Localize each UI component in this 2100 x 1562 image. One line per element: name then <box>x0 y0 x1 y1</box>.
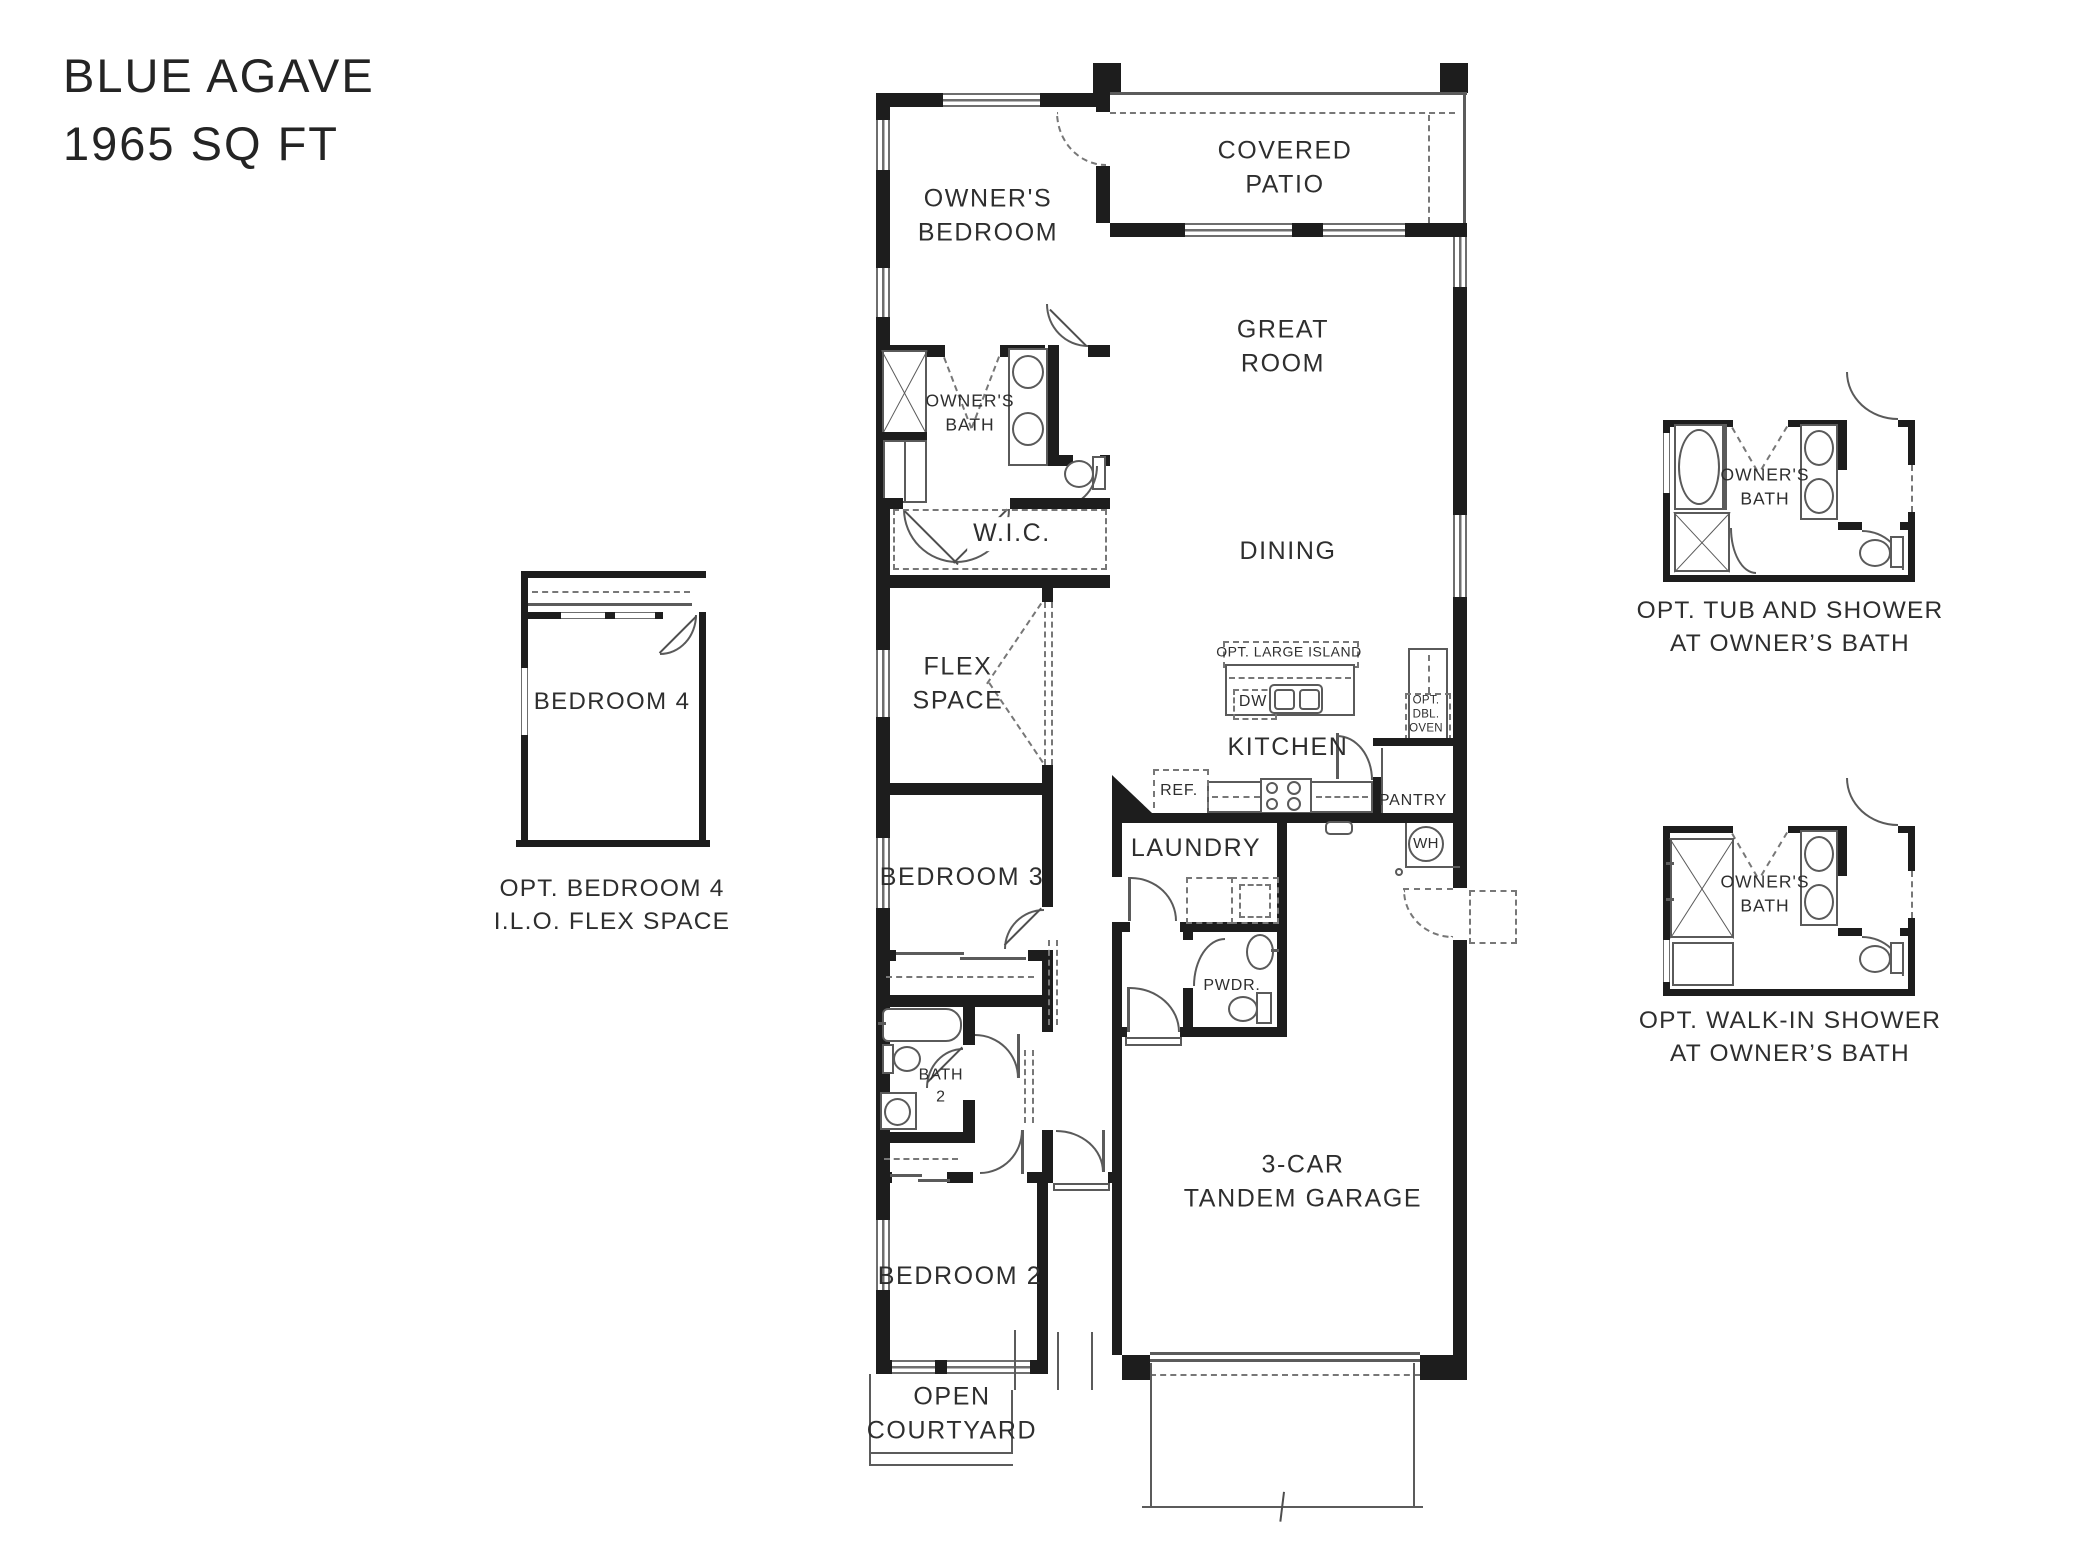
wall-segment <box>1112 1027 1127 1037</box>
sink-basin <box>1299 689 1320 710</box>
wall-segment <box>1292 223 1323 237</box>
wall-segment <box>1112 922 1130 932</box>
window <box>892 1360 935 1374</box>
toilet-bowl <box>1228 996 1258 1022</box>
wall-segment <box>1420 1355 1467 1380</box>
floor-plan-canvas: BLUE AGAVE1965 SQ FT <box>0 0 2100 1562</box>
door-leaf <box>1017 1034 1020 1078</box>
opening-dashed <box>1911 465 1913 512</box>
wall-segment <box>1112 1037 1122 1355</box>
wall-segment <box>699 619 706 847</box>
burner <box>1266 782 1278 794</box>
wall-segment <box>1112 823 1122 877</box>
sink-basin <box>1804 430 1834 466</box>
wall-segment <box>963 1007 975 1045</box>
edge-line <box>528 603 692 606</box>
wall-segment <box>1042 1130 1053 1172</box>
closet-rod-dashed <box>886 976 1034 978</box>
wall-segment <box>1110 223 1185 237</box>
door-swing-arc <box>1056 112 1106 166</box>
door-swing-arc <box>1846 372 1898 420</box>
wall-segment <box>876 498 903 509</box>
ceiling-break-dashed <box>1056 940 1058 1025</box>
door-swing-arc <box>1730 528 1756 574</box>
wh-nook-line <box>1405 866 1460 868</box>
sink-basin <box>884 1098 911 1126</box>
plan-title: BLUE AGAVE1965 SQ FT <box>63 42 375 178</box>
closet-rod-dashed <box>884 1158 958 1160</box>
door-swing-arc <box>975 1034 1019 1078</box>
wall-segment <box>1096 166 1110 223</box>
label-covered-patio: COVERED PATIO <box>1218 134 1353 202</box>
wall-segment <box>876 1132 975 1143</box>
wall-segment <box>1663 826 1733 833</box>
tub-faucet <box>878 1022 886 1025</box>
toilet-tank <box>1890 536 1904 568</box>
bypass-door-line <box>918 1179 950 1182</box>
door-leaf <box>1102 1130 1105 1172</box>
door-swing-arc <box>1004 909 1044 949</box>
optional-door-dashed <box>1044 602 1046 765</box>
floor-drain <box>1395 868 1403 876</box>
wall-segment <box>1180 1027 1287 1037</box>
wall-segment <box>1030 1360 1048 1374</box>
wall-segment <box>1040 93 1110 107</box>
window <box>876 268 890 317</box>
bypass-door-line <box>890 1174 922 1177</box>
label-garage: 3-CAR TANDEM GARAGE <box>1184 1148 1422 1216</box>
wall-segment <box>1838 826 1847 876</box>
window <box>615 612 655 619</box>
wall-segment <box>1663 989 1915 996</box>
wall-segment <box>876 717 890 838</box>
window <box>1663 433 1670 493</box>
window <box>876 650 890 717</box>
cased-opening-dashed <box>1024 1050 1026 1123</box>
burner <box>1287 797 1301 811</box>
label-owners-bedroom: OWNER'S BEDROOM <box>918 182 1058 250</box>
patio-post <box>1093 63 1121 93</box>
wall-segment <box>876 1360 892 1374</box>
optional-door-dashed <box>1051 602 1053 765</box>
washer-box <box>1186 877 1233 924</box>
wall-segment <box>521 735 528 847</box>
window <box>1453 515 1467 597</box>
label-laundry: LAUNDRY <box>1131 832 1261 866</box>
ceiling-break-dashed <box>1048 940 1050 1025</box>
burner <box>1287 781 1301 795</box>
wall-segment <box>1112 775 1152 813</box>
label-opt-large-island: OPT. LARGE ISLAND <box>1216 643 1361 662</box>
wh-nook-line <box>1405 823 1407 868</box>
wall-segment <box>876 170 890 268</box>
wall-segment <box>1027 1172 1053 1183</box>
shower-fixture <box>1666 862 1674 865</box>
door-swing-arc <box>1131 877 1177 921</box>
label-pantry: PANTRY <box>1379 790 1447 812</box>
wall-segment <box>1088 345 1110 357</box>
wall-segment <box>1028 950 1048 961</box>
walkway-line <box>1091 1332 1093 1390</box>
burner <box>1266 798 1278 810</box>
linen-closet <box>1672 942 1734 986</box>
wall-segment <box>1908 826 1915 871</box>
label-inset-owners-bath: OWNER'S BATH <box>1720 463 1809 510</box>
door-leaf <box>1021 1130 1024 1174</box>
wall-segment <box>516 840 710 847</box>
wall-segment <box>1453 287 1467 515</box>
wall-segment <box>1042 588 1053 602</box>
wall-segment <box>876 783 1053 795</box>
counter-dashed-line <box>1316 796 1368 798</box>
sink-basin <box>1012 355 1044 389</box>
label-kitchen: KITCHEN <box>1228 731 1349 765</box>
label-owners-bath: OWNER'S BATH <box>925 389 1014 436</box>
label-wic: W.I.C. <box>967 517 1057 551</box>
driveway-apron-line <box>1413 1363 1415 1508</box>
bypass-door-line <box>896 952 964 955</box>
cabinet-dashed-line <box>1428 655 1430 693</box>
toilet-tank <box>1256 992 1272 1024</box>
wall-segment <box>1900 928 1915 936</box>
wall-segment <box>1183 932 1193 940</box>
caption-opt-walkin-shower: OPT. WALK-IN SHOWER AT OWNER’S BATH <box>1639 1004 1941 1070</box>
label-bedroom-3: BEDROOM 3 <box>880 861 1044 895</box>
toilet-bowl <box>893 1046 921 1072</box>
label-pwdr: PWDR. <box>1203 975 1260 997</box>
wall-segment <box>876 950 896 961</box>
walkway-line <box>1057 1332 1059 1390</box>
window <box>1453 237 1467 287</box>
wall-segment <box>1453 597 1467 888</box>
label-opt-dbl-oven: OPT. DBL. OVEN <box>1409 694 1443 735</box>
sink-basin <box>1246 934 1274 970</box>
wall-segment <box>1900 522 1915 530</box>
garage-header-dashed-line <box>1150 1374 1420 1376</box>
courtyard-wall-line <box>869 1452 1013 1454</box>
shower-fixture <box>1666 898 1674 901</box>
counter-dashed-line <box>1229 677 1351 679</box>
patio-roof-dashed-line <box>1110 112 1455 114</box>
wall-segment <box>1908 420 1915 465</box>
door-threshold <box>1053 1183 1110 1191</box>
wall-segment <box>699 612 706 619</box>
caption-opt-tub-shower: OPT. TUB AND SHOWER AT OWNER’S BATH <box>1637 594 1944 660</box>
wall-segment <box>1663 420 1670 433</box>
dryer-inner-box <box>1239 884 1271 918</box>
wall-segment <box>1122 1355 1150 1380</box>
wall-segment <box>935 1360 947 1374</box>
wall-segment <box>1838 420 1847 470</box>
label-inset-owners-bath: OWNER'S BATH <box>1720 870 1809 917</box>
wall-segment <box>1663 575 1915 582</box>
caption-bedroom-4: OPT. BEDROOM 4 I.L.O. FLEX SPACE <box>494 872 730 938</box>
wall-segment <box>1112 922 1122 1027</box>
label-bedroom-4: BEDROOM 4 <box>534 686 691 718</box>
sink-basin <box>1274 689 1295 710</box>
courtyard-wall-line <box>869 1464 1013 1466</box>
wall-segment <box>876 995 1048 1007</box>
door-threshold <box>1125 1037 1182 1046</box>
linen-shelf-line <box>904 440 906 503</box>
door-swing-arc <box>1403 890 1453 938</box>
sink-basin <box>1804 836 1834 872</box>
door-leaf <box>1127 987 1130 1032</box>
wall-segment <box>521 578 528 668</box>
patio-edge-line <box>1110 92 1467 95</box>
label-dining: DINING <box>1239 535 1336 569</box>
label-wh: WH <box>1413 834 1439 854</box>
patio-edge-line <box>1463 93 1466 224</box>
patio-post <box>1440 63 1468 93</box>
window <box>947 1360 1030 1374</box>
door-swing-arc <box>1056 1130 1104 1172</box>
label-ref: REF. <box>1160 780 1198 802</box>
toilet-bowl <box>1859 945 1891 973</box>
wall-segment <box>1453 223 1467 237</box>
window <box>1323 223 1405 237</box>
wall-segment <box>876 93 943 107</box>
wall-segment <box>521 571 706 578</box>
window <box>561 612 605 619</box>
bathtub <box>1678 429 1720 505</box>
garage-door-line <box>1150 1359 1420 1362</box>
wall-segment <box>1112 813 1467 823</box>
label-open-courtyard: OPEN COURTYARD <box>867 1380 1037 1448</box>
bathtub <box>882 1008 962 1042</box>
wall-segment <box>1453 940 1467 1355</box>
window <box>943 93 1040 107</box>
wall-segment <box>1663 493 1670 582</box>
entry-stoop-outline <box>1469 890 1517 944</box>
door-leaf <box>1128 877 1131 921</box>
wall-segment <box>1010 498 1110 509</box>
plan-sqft: 1965 SQ FT <box>63 117 339 170</box>
window <box>876 120 890 170</box>
roof-dashed-line <box>532 591 690 593</box>
bypass-door-line <box>960 957 1026 960</box>
garage-keypad <box>1325 821 1353 835</box>
counter-dashed-line <box>1212 796 1260 798</box>
label-dw: DW <box>1239 691 1267 713</box>
opening-dashed <box>1911 871 1913 918</box>
label-flex-space: FLEX SPACE <box>913 650 1004 718</box>
sink-faucet <box>1271 949 1279 952</box>
door-swing-arc <box>1130 987 1180 1032</box>
door-leaf <box>1403 888 1453 890</box>
door-swing-arc <box>1846 778 1898 826</box>
window <box>521 668 528 735</box>
patio-roof-dashed-line <box>1428 115 1430 223</box>
label-bath-2: BATH 2 <box>919 1064 964 1107</box>
wall-segment <box>962 1172 973 1183</box>
door-swing-arc <box>980 1130 1023 1174</box>
wall-segment <box>605 612 615 619</box>
toilet-tank <box>1890 942 1904 974</box>
wall-segment <box>1663 826 1670 940</box>
cased-opening-dashed-line <box>1761 832 1788 876</box>
toilet-bowl <box>1859 539 1891 567</box>
sink-basin <box>1012 412 1044 446</box>
window <box>1185 223 1292 237</box>
cased-opening-dashed <box>1032 1050 1034 1123</box>
wall-segment <box>876 575 1110 588</box>
garage-door-line <box>1150 1352 1420 1355</box>
wall-segment <box>1838 522 1862 530</box>
wall-segment <box>1048 345 1059 466</box>
driveway-apron-line <box>1150 1363 1152 1508</box>
wall-segment <box>1373 738 1453 746</box>
wall-segment <box>1838 928 1862 936</box>
label-great-room: GREAT ROOM <box>1237 313 1329 381</box>
plan-name: BLUE AGAVE <box>63 49 375 102</box>
window <box>1663 940 1670 982</box>
label-bedroom-2: BEDROOM 2 <box>878 1260 1042 1294</box>
